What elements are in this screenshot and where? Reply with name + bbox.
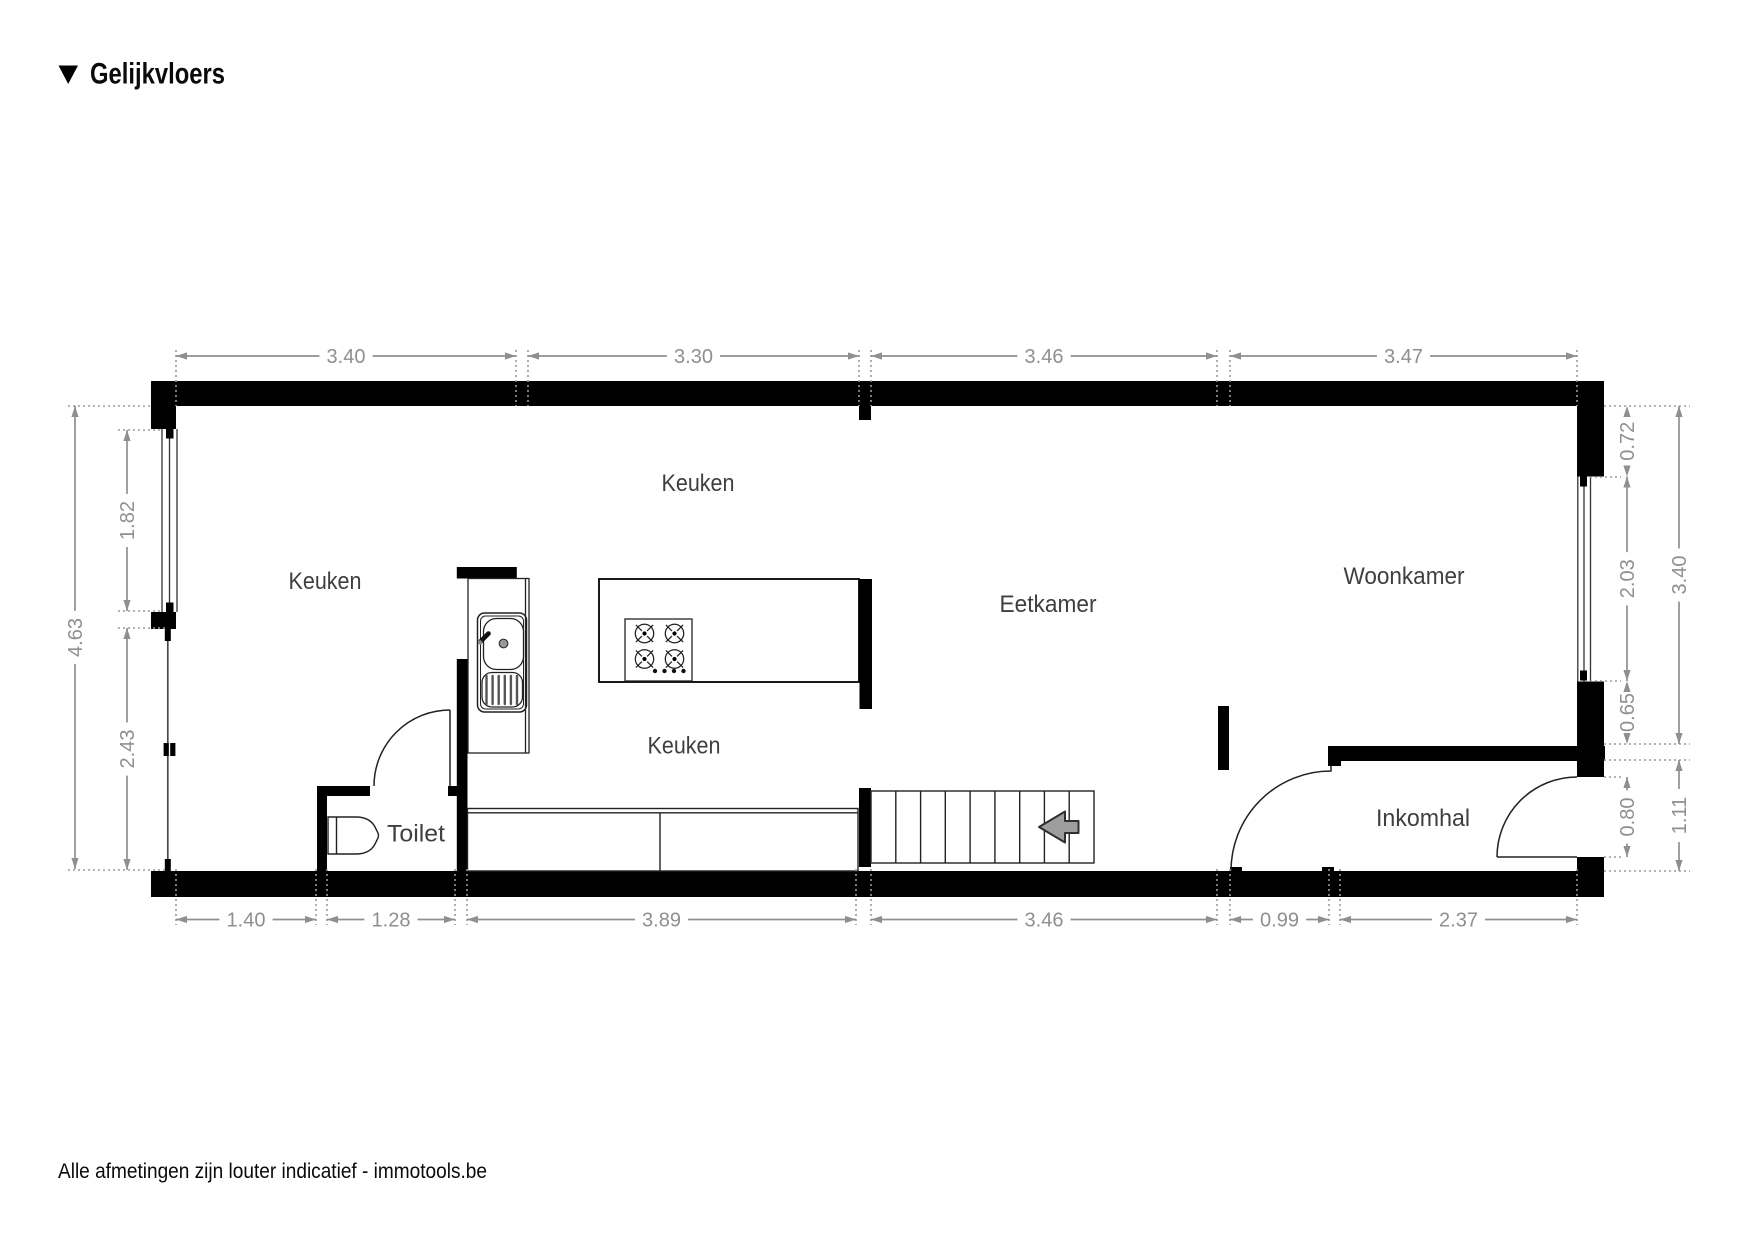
svg-text:0.65: 0.65 [1617, 693, 1639, 732]
svg-text:3.30: 3.30 [674, 346, 713, 368]
svg-text:Keuken: Keuken [662, 470, 735, 497]
svg-text:1.28: 1.28 [372, 910, 411, 932]
svg-text:Gelijkvloers: Gelijkvloers [90, 58, 225, 91]
svg-text:Alle afmetingen zijn louter in: Alle afmetingen zijn louter indicatief -… [58, 1160, 487, 1183]
svg-text:2.37: 2.37 [1439, 910, 1478, 932]
svg-text:1.82: 1.82 [117, 501, 139, 540]
svg-text:2.03: 2.03 [1617, 559, 1639, 598]
svg-text:Woonkamer: Woonkamer [1344, 563, 1465, 590]
svg-text:3.40: 3.40 [1669, 556, 1691, 595]
svg-text:3.47: 3.47 [1384, 346, 1423, 368]
svg-text:0.99: 0.99 [1260, 910, 1299, 932]
svg-text:Inkomhal: Inkomhal [1376, 805, 1470, 832]
svg-text:0.72: 0.72 [1617, 422, 1639, 461]
svg-text:Eetkamer: Eetkamer [1000, 591, 1097, 618]
svg-text:Keuken: Keuken [289, 568, 362, 595]
svg-text:Toilet: Toilet [387, 821, 445, 848]
svg-text:4.63: 4.63 [65, 618, 87, 657]
svg-text:2.43: 2.43 [117, 730, 139, 769]
svg-text:1.11: 1.11 [1669, 797, 1691, 834]
svg-text:3.40: 3.40 [327, 346, 366, 368]
svg-text:3.46: 3.46 [1025, 346, 1064, 368]
svg-text:0.80: 0.80 [1617, 798, 1639, 837]
svg-text:1.40: 1.40 [227, 910, 266, 932]
svg-text:3.46: 3.46 [1025, 910, 1064, 932]
svg-text:Keuken: Keuken [648, 733, 721, 760]
svg-text:3.89: 3.89 [642, 910, 681, 932]
